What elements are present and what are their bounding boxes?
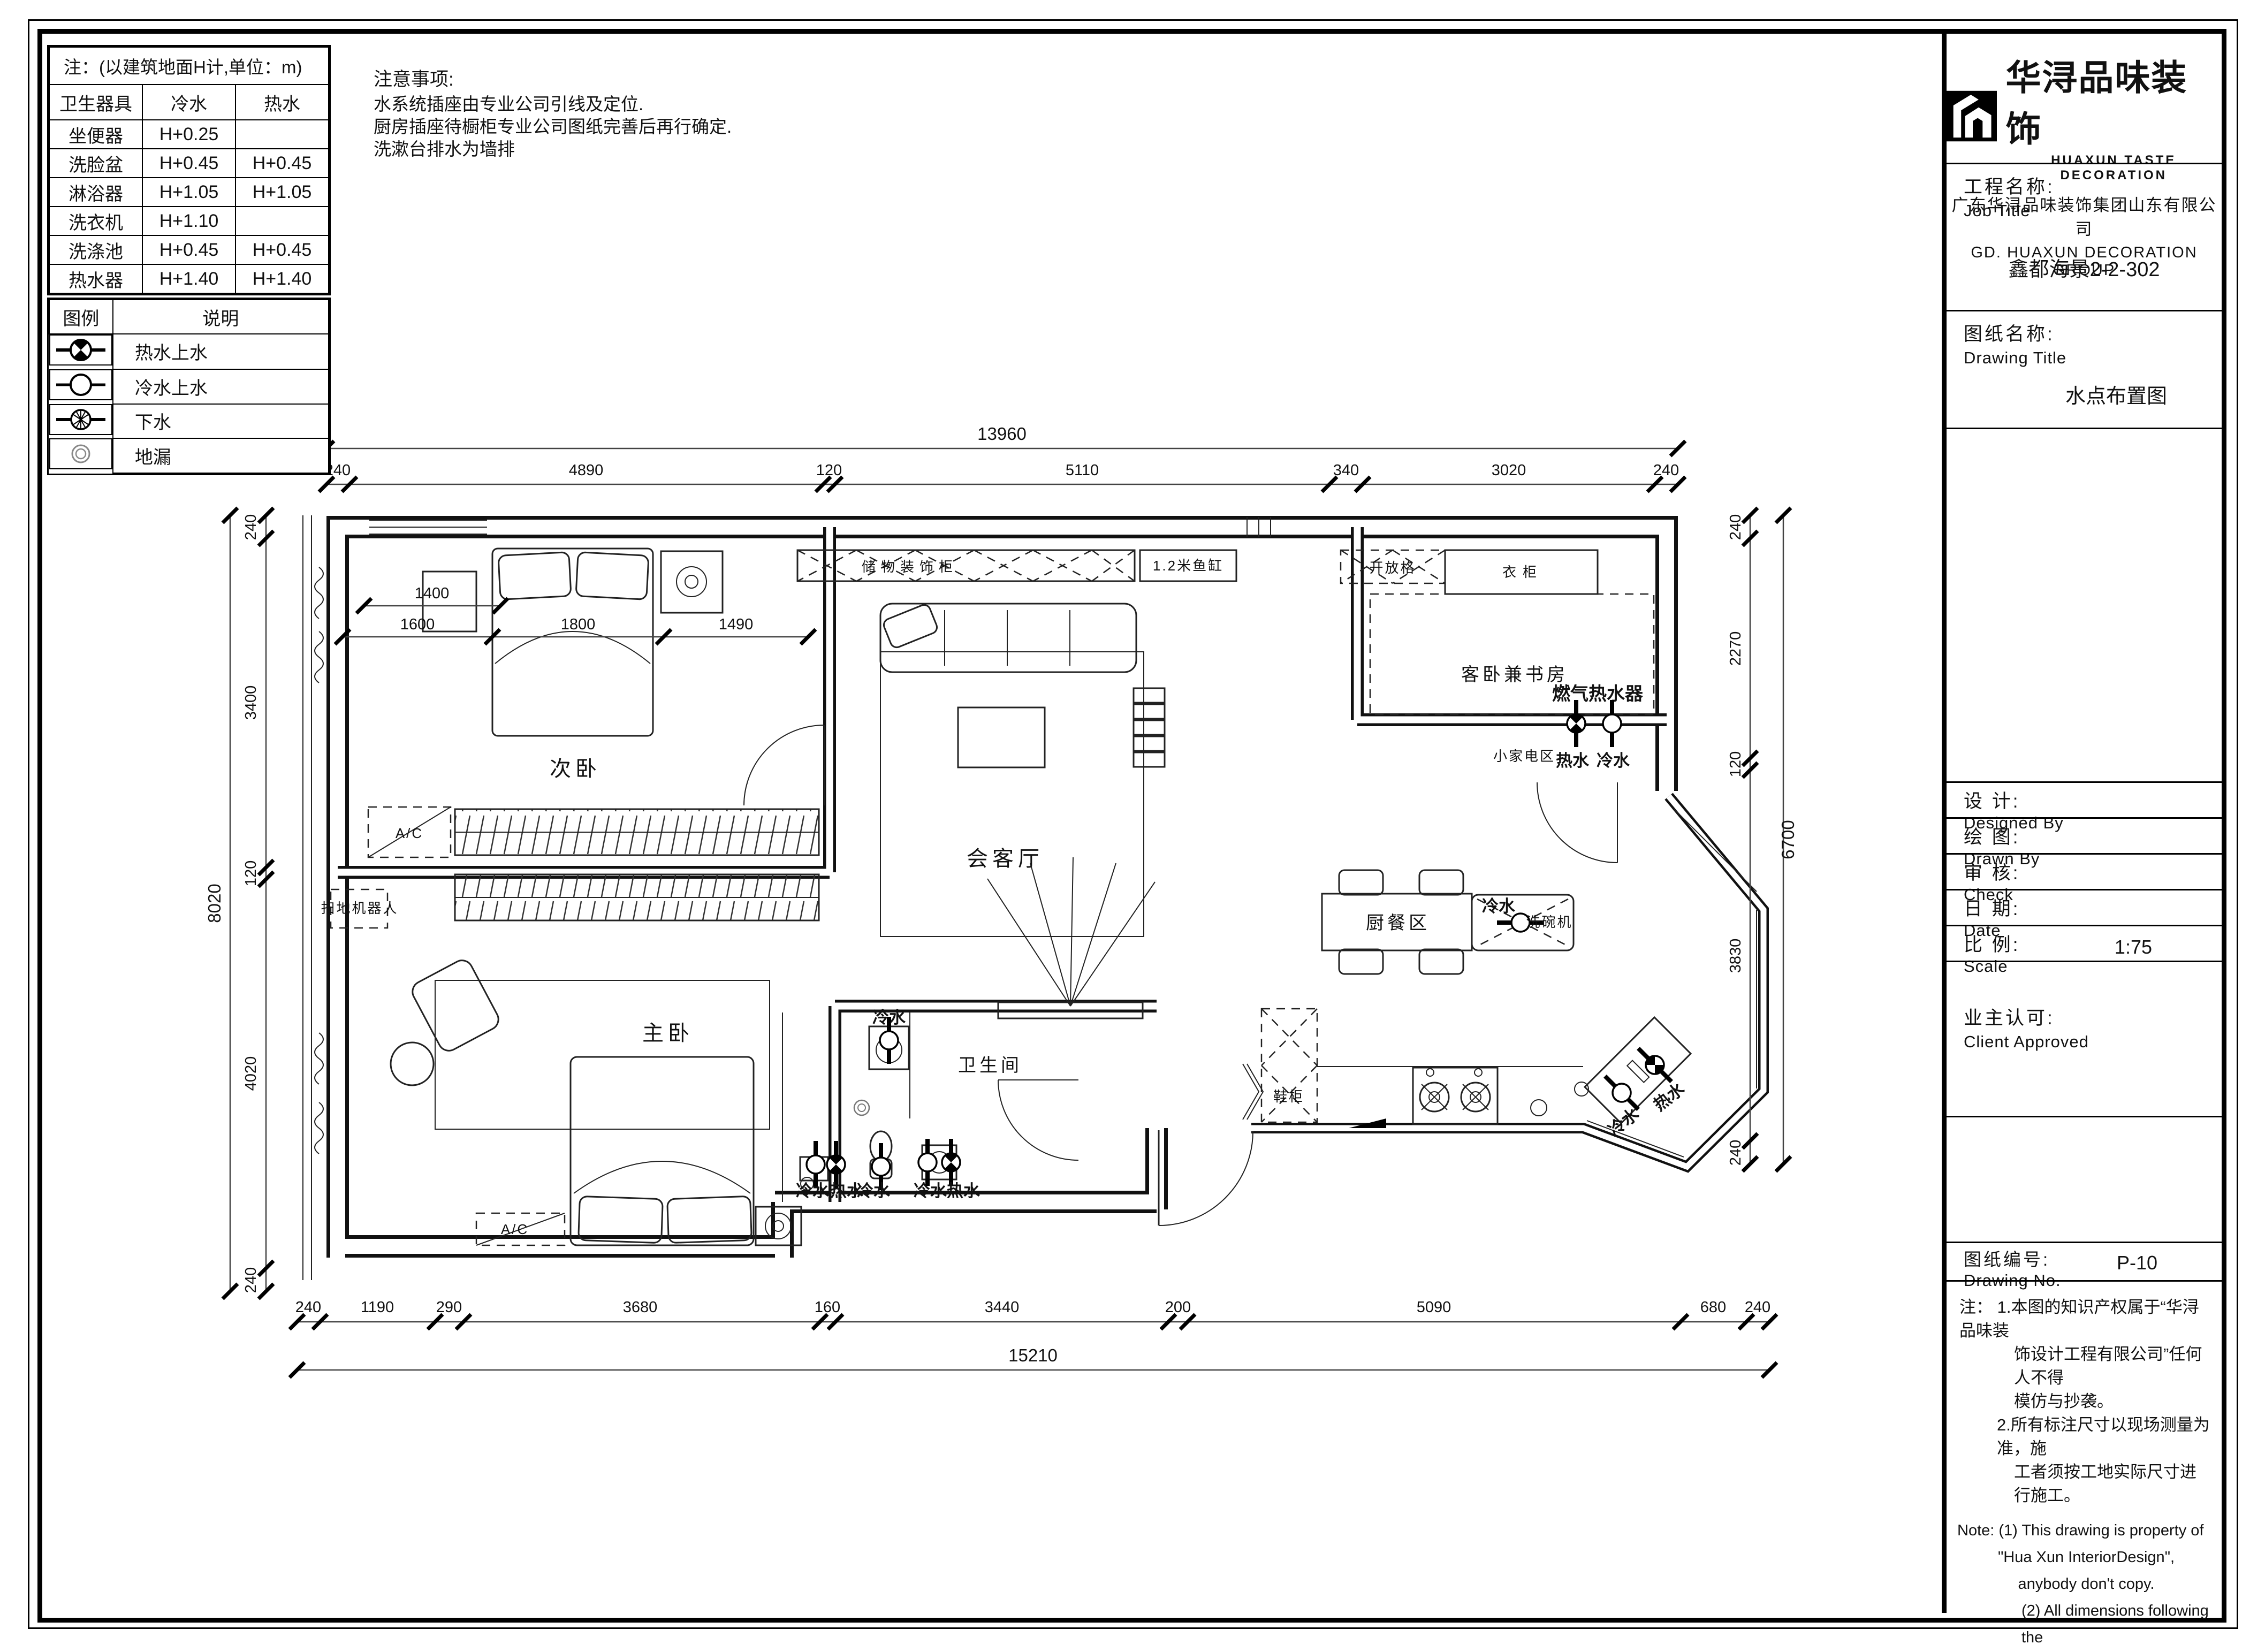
small-appliance-label: 小家电区	[1493, 748, 1555, 764]
site-note-line: 洗漱台排水为墙排	[374, 138, 855, 161]
left-balcony-lines	[303, 515, 311, 1280]
table-row: 坐便器H+0.25	[49, 120, 329, 149]
svg-text:240: 240	[1653, 462, 1679, 479]
cold-label-heater: 冷水	[1597, 751, 1630, 770]
job-title-label-en: Job Title	[1947, 199, 2222, 220]
fixture-table-title: 注：(以建筑地面H计,单位：m)	[49, 47, 329, 85]
bedroom2-dims: 1400 1600 1800 1490	[335, 585, 816, 644]
note-en-line: anybody don't copy.	[1957, 1571, 2215, 1597]
title-block-spacer	[1947, 428, 2222, 781]
wardrobe-label: 衣柜	[1502, 564, 1543, 580]
job-title-label-cn: 工程名称:	[1947, 164, 2222, 199]
svg-text:200: 200	[1165, 1299, 1191, 1316]
svg-text:3680: 3680	[623, 1299, 658, 1316]
svg-text:1490: 1490	[719, 616, 754, 633]
svg-text:290: 290	[436, 1299, 462, 1316]
room-label-guest: 客卧兼书房	[1461, 665, 1568, 685]
drawing-title-label-cn: 图纸名称:	[1947, 311, 2222, 346]
note-en-line: Note: (1) This drawing is property of	[1957, 1517, 2215, 1544]
drawn-by-row: 绘 图: Drawn By	[1947, 817, 2222, 853]
svg-text:120: 120	[242, 861, 260, 886]
room-master: 主卧 A/C	[391, 957, 801, 1245]
svg-text:3400: 3400	[242, 686, 260, 720]
drawing-title-value: 水点布置图	[1947, 379, 2222, 409]
scale-label-cn: 比 例:	[1947, 926, 2222, 957]
open-shelf-label: 开放格	[1369, 560, 1416, 576]
col-cold: 冷水	[142, 85, 235, 120]
drawing-title-section: 图纸名称: Drawing Title 水点布置图	[1947, 310, 2222, 428]
svg-text:3830: 3830	[1727, 939, 1744, 973]
legend-desc-header: 说明	[113, 300, 329, 334]
scale-value: 1:75	[2115, 936, 2152, 958]
svg-text:5090: 5090	[1417, 1299, 1451, 1316]
room-label-bathroom: 卫生间	[958, 1055, 1022, 1076]
fixture-height-table: 注：(以建筑地面H计,单位：m) 卫生器具 冷水 热水 坐便器H+0.25 洗脸…	[47, 45, 331, 295]
room-guest-study: 开放格 衣柜 客卧兼书房 燃气热水器 热水 冷水 小家电区	[1341, 550, 1654, 863]
dim-top: 13960 240 4890 120 5110 340 3020 240	[319, 424, 1685, 492]
legend-table: 图例 说明 热水上水 冷水上水	[47, 298, 331, 475]
svg-text:1400: 1400	[415, 585, 450, 602]
robot-vacuum-label: 扫地机器人	[321, 900, 398, 916]
brand-name-cn: 华浔品味装饰	[2005, 49, 2222, 152]
svg-text:1190: 1190	[361, 1299, 394, 1316]
floor-drain-icon	[54, 440, 108, 468]
designed-label-cn: 设 计:	[1947, 783, 2222, 813]
legend-row: 冷水上水	[49, 369, 329, 404]
svg-text:240: 240	[1727, 514, 1744, 540]
drawing-no-section: 图纸编号: Drawing No. P-10	[1947, 1242, 2222, 1280]
room-kitchen-dining: 厨餐区 冷水 洗碗机 鞋柜	[1159, 870, 1691, 1225]
note-en-line: (2) All dimensions following the	[1957, 1597, 2215, 1651]
svg-text:340: 340	[1333, 462, 1359, 479]
cold-water-icon	[54, 371, 108, 399]
svg-text:4890: 4890	[569, 462, 604, 479]
svg-text:680: 680	[1700, 1299, 1726, 1316]
hot-water-point-kitchen	[1632, 1042, 1678, 1088]
table-row: 洗衣机H+1.10	[49, 207, 329, 235]
ac-label-master: A/C	[501, 1221, 529, 1237]
client-label-en: Client Approved	[1947, 1030, 2222, 1052]
legend-row: 热水上水	[49, 334, 329, 369]
drawing-title-label-en: Drawing Title	[1947, 346, 2222, 368]
note-cn-line: 饰设计工程有限公司”任何人不得	[1959, 1343, 2212, 1390]
svg-text:120: 120	[816, 462, 842, 479]
svg-text:2270: 2270	[1727, 631, 1744, 666]
date-label-cn: 日 期:	[1947, 890, 2222, 921]
gas-heater-label: 燃气热水器	[1552, 684, 1644, 704]
site-notes-title: 注意事项:	[374, 68, 855, 91]
col-fixture: 卫生器具	[49, 85, 142, 120]
check-row: 审 核: Check	[1947, 853, 2222, 889]
client-approved-section: 业主认可: Client Approved	[1947, 961, 2222, 1116]
note-cn-line: 工者须按工地实际尺寸进行施工。	[1959, 1460, 2212, 1508]
copyright-notes-section: 注： 1.本图的知识产权属于“华浔品味装 饰设计工程有限公司”任何人不得 模仿与…	[1947, 1280, 2222, 1613]
title-block-spacer2	[1947, 1116, 2222, 1242]
svg-text:5110: 5110	[1066, 462, 1099, 479]
fish-tank-label: 1.2米鱼缸	[1153, 558, 1223, 574]
note-en-line: "Hua Xun InteriorDesign",	[1957, 1544, 2215, 1571]
title-block: 华浔品味装饰 HUAXUN TASTE DECORATION 广东华浔品味装饰集…	[1942, 29, 2222, 1613]
svg-text:1800: 1800	[561, 616, 596, 633]
note-cn-line: 注： 1.本图的知识产权属于“华浔品味装	[1959, 1296, 2212, 1343]
site-note-line: 厨房插座待橱柜专业公司图纸完善后再行确定.	[374, 116, 855, 138]
svg-text:240: 240	[1727, 1140, 1744, 1166]
shoe-cabinet-label: 鞋柜	[1273, 1088, 1304, 1105]
site-note-line: 水系统插座由专业公司引线及定位.	[374, 93, 855, 116]
room-living: 储物装饰柜 1.2米鱼缸 会客厅	[797, 550, 1236, 1018]
svg-text:4020: 4020	[242, 1056, 260, 1091]
cold-label-dishwasher: 冷水	[1482, 897, 1516, 916]
svg-text:240: 240	[242, 514, 260, 540]
room-label-master: 主卧	[642, 1022, 694, 1045]
legend-row: 地漏	[49, 438, 329, 473]
job-title-value: 鑫都海景2-2-302	[1947, 253, 2222, 282]
floor-plan: 次卧 A/C 扫地机器人 1400	[0, 0, 2265, 1652]
svg-text:3020: 3020	[1492, 462, 1526, 479]
svg-text:240: 240	[1745, 1299, 1770, 1316]
svg-text:240: 240	[242, 1267, 260, 1293]
svg-text:8020: 8020	[204, 884, 224, 923]
site-notes: 注意事项: 水系统插座由专业公司引线及定位. 厨房插座待橱柜专业公司图纸完善后再…	[374, 68, 855, 161]
table-row: 洗涤池H+0.45H+0.45	[49, 235, 329, 264]
note-cn-line: 模仿与抄袭。	[1959, 1390, 2212, 1413]
room-label-living: 会客厅	[967, 847, 1044, 871]
company-section: 华浔品味装饰 HUAXUN TASTE DECORATION 广东华浔品味装饰集…	[1947, 29, 2222, 163]
col-hot: 热水	[235, 85, 329, 120]
table-row: 热水器H+1.40H+1.40	[49, 264, 329, 293]
hot-label-vanity: 热水	[947, 1182, 981, 1200]
scale-row: 比 例: Scale 1:75	[1947, 925, 2222, 961]
ac-label-bedroom2: A/C	[396, 825, 423, 841]
cold-label-vanity: 冷水	[914, 1182, 947, 1200]
room-label-bedroom2: 次卧	[550, 757, 601, 781]
svg-text:160: 160	[815, 1299, 840, 1316]
room-label-dining: 厨餐区	[1366, 913, 1430, 933]
table-row: 淋浴器H+1.05H+1.05	[49, 178, 329, 207]
job-title-section: 工程名称: Job Title 鑫都海景2-2-302	[1947, 163, 2222, 310]
cold-water-point-heater	[1603, 700, 1621, 747]
hot-water-point-heater	[1567, 700, 1585, 747]
svg-text:15210: 15210	[1008, 1345, 1058, 1365]
hot-water-icon	[54, 336, 108, 364]
note-cn-line: 2.所有标注尺寸以现场测量为准，施	[1959, 1413, 2212, 1460]
hot-label-heater: 热水	[1556, 751, 1590, 770]
dim-bottom: 240 1190 290 3680 160 3440 200 5090 680 …	[290, 1299, 1777, 1377]
svg-text:240: 240	[295, 1299, 321, 1316]
drawing-no-value: P-10	[2117, 1252, 2157, 1274]
drawing-no-label-cn: 图纸编号:	[1947, 1243, 2222, 1271]
hot-label-basin: 热水	[830, 1182, 864, 1200]
svg-text:3440: 3440	[985, 1299, 1020, 1316]
floor-drain	[854, 1100, 869, 1115]
legend-symbol-header: 图例	[49, 300, 113, 334]
huaxun-logo-icon	[1947, 88, 1997, 144]
svg-text:13960: 13960	[977, 424, 1027, 444]
drain-icon	[54, 406, 108, 433]
drawn-label-cn: 绘 图:	[1947, 819, 2222, 849]
dim-left: 240 3400 120 4020 240 8020	[204, 508, 273, 1299]
legend-row: 下水	[49, 404, 329, 439]
svg-text:1600: 1600	[400, 616, 435, 633]
date-row: 日 期: Date	[1947, 889, 2222, 925]
check-label-cn: 审 核:	[1947, 855, 2222, 885]
svg-text:120: 120	[1727, 751, 1744, 777]
storage-cabinet-label: 储物装饰柜	[862, 559, 958, 575]
dishwasher-label: 洗碗机	[1526, 914, 1572, 930]
client-label-cn: 业主认可:	[1947, 962, 2222, 1030]
svg-text:6700: 6700	[1778, 820, 1798, 859]
cold-label-basin: 冷水	[796, 1182, 830, 1200]
drawing-sheet: 次卧 A/C 扫地机器人 1400	[0, 0, 2265, 1652]
hot-label-kitchen: 热水	[1650, 1079, 1688, 1114]
designed-by-row: 设 计: Designed By	[1947, 781, 2222, 817]
table-row: 洗脸盆H+0.45H+0.45	[49, 149, 329, 178]
